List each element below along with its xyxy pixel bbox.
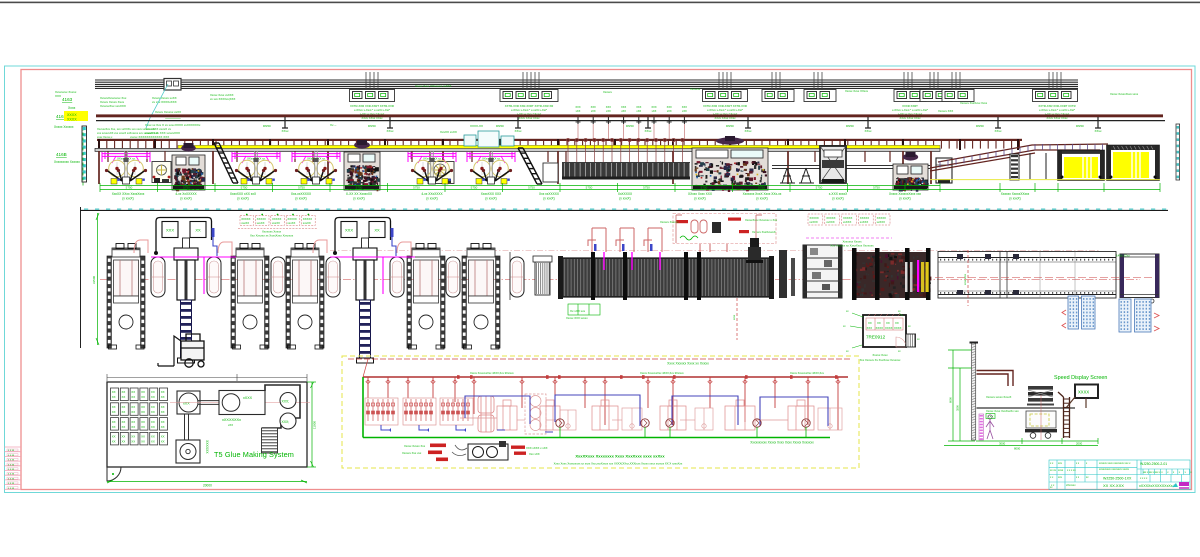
svg-text:T5 Glue Making System: T5 Glue Making System <box>214 450 294 459</box>
svg-text:x x: x x <box>1050 476 1054 479</box>
svg-text:5750: 5750 <box>183 186 190 190</box>
svg-text:XXXX: XXXX <box>67 118 77 122</box>
svg-text:XX: XX <box>151 405 155 409</box>
svg-text:5750: 5750 <box>816 186 823 190</box>
svg-text:6000: 6000 <box>949 397 953 403</box>
svg-text:XXXX xxXXXXXXx: XXXX xxXXXXXXx <box>175 123 201 127</box>
svg-text:XXXXXX: XXXXXX <box>205 440 209 454</box>
svg-text:XXXX-XX: XXXX-XX <box>470 124 483 128</box>
svg-text:xxXXX: xxXXX <box>860 220 869 224</box>
svg-text:5750: 5750 <box>873 186 880 190</box>
svg-text:xx: xx <box>898 310 901 313</box>
svg-text:Xxx Xxxxxx Xx XxxXxxx Xxxxxxx: Xxx Xxxxxx Xx XxxXxxx Xxxxxxx <box>860 358 901 362</box>
svg-text:xx xxx XXXXxXXX: xx xxx XXXXxXXX <box>152 100 177 104</box>
svg-text:x: x <box>1179 471 1181 474</box>
svg-text:xxxx: xxxx <box>1058 469 1064 472</box>
svg-text:Xxxxx Xxxxx Xxx: Xxxxx Xxxxx Xxx <box>404 444 426 448</box>
svg-text:x x xx: x x xx <box>8 477 15 480</box>
svg-text:5750: 5750 <box>643 186 650 190</box>
svg-text:XX: XX <box>112 405 116 409</box>
svg-text:WJ250-2500-1XX: WJ250-2500-1XX <box>1103 477 1132 481</box>
svg-text:Xxx Xxxxxx xx XxxxXxxx Xxxxxxx: Xxx Xxxxxx xx XxxxXxxx Xxxxxxx <box>250 234 294 238</box>
svg-text:(x xxxX): (x xxxX) <box>1009 197 1021 201</box>
svg-text:xxxx xxxx: xxxx xxxx <box>964 273 967 285</box>
svg-text:xXX: xXX <box>576 109 581 113</box>
svg-text:XX: XX <box>122 420 126 424</box>
svg-text:XX: XX <box>151 440 155 444</box>
svg-text:x x x x: x x x x <box>1140 477 1148 480</box>
svg-text:xxxx: xxxx <box>733 314 736 320</box>
svg-text:XX: XX <box>112 435 116 439</box>
svg-text:5750: 5750 <box>701 186 708 190</box>
svg-text:XXXX: XXXX <box>894 326 902 330</box>
svg-text:(x xxxX): (x xxxX) <box>426 197 438 201</box>
svg-text:XXxx: XXxx <box>744 129 752 133</box>
svg-text:XX: XX <box>141 395 145 399</box>
svg-text:XX: XX <box>374 228 380 233</box>
svg-text:xxXXX: xxXXX <box>826 220 835 224</box>
svg-text:Xxxx Xxxx Xxxxxxxxx xx xxxx Xx: Xxxx Xxxx Xxxxxxxxx xx xxxx Xxx,xxxXxxxx… <box>554 462 683 466</box>
svg-text:5750: 5750 <box>758 186 765 190</box>
svg-text:xxxxxx xxxx xxxxxxxx xxx x: xxxxxx xxxx xxxxxxxx xxx x <box>1099 462 1131 465</box>
svg-text:Xxxxxx XXX: Xxxxxx XXX <box>938 109 953 113</box>
svg-text:Xxxxx Xxxx XXxxxxxx xxXXX: Xxxxx Xxxx XXxxxxxx xxXXX <box>415 84 452 88</box>
svg-text:Xxxxxx XxxXxxx Xxxx: Xxxxxx XxxXxxx Xxxx <box>960 101 988 105</box>
svg-text:x: x <box>1161 471 1163 474</box>
svg-text:Xxx xxXXXXX: Xxx xxXXXXX <box>539 192 560 196</box>
svg-text:XxxXX xxXX: XxxXX xxXX <box>440 130 457 134</box>
svg-text:Xxxxx XxxxxxxXxx 4XXX,Xxx 3Xx/: Xxxxx XxxxxxxXxx 4XXX,Xxx 3Xx/xxx <box>640 371 684 375</box>
svg-text:XXX: XXX <box>636 105 641 109</box>
svg-text:XXXX: XXXX <box>1078 390 1089 395</box>
svg-text:xXX: xXX <box>606 109 611 113</box>
svg-text:xxxx Xxxxx,x: xxxx Xxxxx,x <box>97 135 113 139</box>
svg-text:5750: 5750 <box>298 186 305 190</box>
svg-text:XX: XX <box>161 440 165 444</box>
svg-text:xxx xxxxxxXX xxx xxxxX xxXxxxx: xxx xxxxxxXX xxx xxxxX xxXxxxxx xxx xxxx… <box>97 131 158 135</box>
svg-text:5750: 5750 <box>528 186 535 190</box>
svg-text:(x xxxX): (x xxxX) <box>180 197 192 201</box>
svg-text:xXX: xXX <box>682 109 687 113</box>
svg-text:Xxxxx XxxxxxxXxx 4XXX,Xxx 3Xx/: Xxxxx XxxxxxxXxx 4XXX,Xxx 3Xx/xxx <box>470 371 514 375</box>
svg-text:x x xx: x x xx <box>8 463 15 466</box>
svg-text:xXXXXxXXXXXXxXx,X: xXXXXxXXXXXXxXx,X <box>1139 484 1177 488</box>
svg-text:XXxx: XXxx <box>1094 129 1102 133</box>
svg-text:WJ250-2500-2-01: WJ250-2500-2-01 <box>1140 462 1167 466</box>
svg-text:XxxXXxxx Xxxxxxxx Xxxx XxxXxxx: XxxXXxxx Xxxxxxxx Xxxx XxxXxxx xxxx xxXx… <box>575 454 665 459</box>
svg-text:Speed Display Screen: Speed Display Screen <box>1054 375 1107 381</box>
svg-text:xXX: xXX <box>636 109 641 113</box>
svg-text:Xxxxx XxxxxxxXxx 4XXX,Xxx: Xxxxx XxxxxxxXxx 4XXX,Xxx <box>790 371 825 375</box>
svg-text:xxxxx XXXXXXXXXXXX XXX: xxxxx XXXXXXXXXXXX XXX <box>130 135 169 139</box>
svg-text:XX: XX <box>122 405 126 409</box>
svg-text:xx: xx <box>846 350 849 353</box>
svg-text:Xxxxx XxxxxXxxx xxxx: Xxxxx XxxxxXxxx xxxx <box>1110 92 1139 96</box>
svg-text:Xxxx Xxxxxx Xxxx xx Xxxxx: Xxxx Xxxxxx Xxxx xx Xxxxx <box>667 362 709 366</box>
svg-text:(x xxxX): (x xxxX) <box>353 197 365 201</box>
svg-text:XXX: XXX <box>575 105 580 109</box>
svg-text:XX: XX <box>131 420 135 424</box>
svg-text:XX: XX <box>131 435 135 439</box>
svg-text:xx: xx <box>843 325 846 328</box>
svg-text:xxx: xxx <box>1058 476 1063 479</box>
svg-text:XX: XX <box>131 410 135 414</box>
svg-text:x-XXX xxxxX: x-XXX xxxxX <box>829 192 848 196</box>
svg-text:XX: XX <box>161 390 165 394</box>
svg-text:XX: XX <box>886 321 890 325</box>
svg-text:XX: XX <box>141 440 145 444</box>
svg-text:XX: XX <box>122 395 126 399</box>
svg-text:XxxXX XXxx XxxxXxxx: XxxXX XXxx XxxxXxxx <box>112 192 145 196</box>
svg-text:Xxx Xxxxxx xx XxxxXxxx Xxxxxxx: Xxx Xxxxxx xx XxxxXxxx Xxxxxxx <box>830 244 874 248</box>
svg-text:XXxx: XXxx <box>281 129 289 133</box>
svg-text:(x xxxX): (x xxxX) <box>619 197 631 201</box>
svg-text:x x xx: x x xx <box>8 468 15 471</box>
svg-text:XX: XX <box>122 390 126 394</box>
svg-text:(x xxxX): (x xxxX) <box>237 197 249 201</box>
svg-text:Xxxxxx XxxxxXXxxx: Xxxxxx XxxxxXXxxx <box>1001 192 1030 196</box>
svg-text:xx: xx <box>917 338 920 341</box>
svg-text:XX: XX <box>868 321 872 325</box>
svg-text:1498.52xx: 1498.52xx <box>1116 254 1130 258</box>
svg-text:xx: xx <box>898 350 901 353</box>
svg-text:XXXX: XXXX <box>67 113 77 117</box>
svg-text:DN50: DN50 <box>626 124 634 128</box>
svg-text:XxxxXXX XXX: XxxxXXX XXX <box>481 192 502 196</box>
svg-text:XX: XX <box>877 321 881 325</box>
svg-text:xxXXX: xxXXX <box>809 220 818 224</box>
svg-text:Xxxxxxx: Xxxxxxx <box>690 87 701 91</box>
svg-text:416B: 416B <box>56 152 67 157</box>
svg-text:3000: 3000 <box>999 442 1006 446</box>
svg-text:xxxXX: xxxXX <box>303 221 311 225</box>
svg-text:XXX: XXX <box>988 415 994 419</box>
svg-text:xx: xx <box>846 310 849 313</box>
svg-text:XXX: XXX <box>591 105 596 109</box>
svg-text:XX: XX <box>895 321 899 325</box>
svg-text:XX: XX <box>141 390 145 394</box>
svg-text:XXxx: XXxx <box>386 129 394 133</box>
svg-text:XX: XX <box>131 440 135 444</box>
svg-text:XXX: XXX <box>55 94 61 98</box>
svg-text:XXxx: XXxx <box>644 129 652 133</box>
svg-text:Xxx xXX: Xxx xXX <box>529 452 540 456</box>
svg-text:DN50: DN50 <box>368 124 376 128</box>
svg-text:XxXXXXX: XxXXXXX <box>618 192 633 196</box>
svg-text:XX: XX <box>131 425 135 429</box>
svg-text:4163: 4163 <box>62 97 73 102</box>
svg-text:DN50: DN50 <box>976 124 984 128</box>
svg-text:xXX: xXX <box>591 109 596 113</box>
svg-text:DN50: DN50 <box>263 124 271 128</box>
svg-text:xxxXX: xxxXX <box>257 221 265 225</box>
svg-text:DN50: DN50 <box>846 124 854 128</box>
svg-text:XX: XX <box>151 395 155 399</box>
svg-text:5750: 5750 <box>471 186 478 190</box>
svg-text:11000: 11000 <box>313 421 317 429</box>
svg-text:XX: XX <box>161 395 165 399</box>
svg-text:Xxx-xxXXXXX: Xxx-xxXXXXX <box>291 192 312 196</box>
svg-text:Xxxxxxx XxxX Xxxx XXx-xx: Xxxxxxx XxxX Xxxx XXx-xx <box>743 192 782 196</box>
svg-text:xXX: xXX <box>652 109 657 113</box>
svg-text:Xxxxxxxxx Xxxxxx: Xxxxxxxxx Xxxxxx <box>54 160 80 164</box>
svg-text:x x xx: x x xx <box>8 449 15 452</box>
svg-text:x x xx: x x xx <box>8 473 15 476</box>
svg-text:x x: x x <box>1076 476 1080 479</box>
svg-text:DN50: DN50 <box>496 124 504 128</box>
svg-text:5750: 5750 <box>126 186 133 190</box>
svg-text:XXX;: XXX; <box>282 400 290 404</box>
svg-text:XX: XX <box>151 420 155 424</box>
svg-text:Xxxxxx xxxxx XxxxX: Xxxxxx xxxxx XxxxX <box>986 395 1011 399</box>
svg-text:XX: XX <box>151 410 155 414</box>
svg-text:5750: 5750 <box>586 186 593 190</box>
svg-text:Xxxxx Xxxxxx: Xxxxx Xxxxxx <box>54 125 74 129</box>
svg-text:31500: 31500 <box>92 275 96 284</box>
svg-text:XX: XX <box>151 425 155 429</box>
svg-text:3500: 3500 <box>956 405 960 411</box>
svg-text:20000: 20000 <box>203 484 212 488</box>
svg-text:x x: x x <box>1050 462 1054 465</box>
svg-text:DN50: DN50 <box>1076 124 1084 128</box>
svg-text:XXX: XXX <box>621 105 626 109</box>
svg-text:xXXX: xXXX <box>243 396 253 400</box>
svg-text:4-xx XxXXXXX: 4-xx XxXXXXX <box>175 192 197 196</box>
svg-text:Xxxxxxxxxx Xxxxx Xxxx Xxxx Xxx: Xxxxxxxxxx Xxxxx Xxxx Xxxx Xxxxx Xxxxxxx <box>750 441 814 445</box>
svg-text:xXXXXXXx: xXXXXXXx <box>222 418 241 422</box>
svg-text:XXX: XXX <box>345 228 353 233</box>
svg-text:XX: XX <box>112 425 116 429</box>
svg-text:X-XX XX XxxxxXX: X-XX XX XxxxxXX <box>346 192 373 196</box>
svg-text:DN50: DN50 <box>726 124 734 128</box>
svg-text:XX: XX <box>141 420 145 424</box>
svg-text:5750: 5750 <box>413 186 420 190</box>
svg-text:XX: XX <box>161 435 165 439</box>
svg-text:XX: XX <box>122 440 126 444</box>
svg-text:XX: XX <box>122 410 126 414</box>
svg-text:x: x <box>1185 471 1187 474</box>
svg-text:xxxXX: xxxXX <box>241 221 249 225</box>
svg-text:XXX;: XXX; <box>282 420 290 424</box>
svg-text:(x xxxX): (x xxxX) <box>485 197 497 201</box>
svg-text:Xxxxx Xxxx: Xxxxx Xxxx <box>872 353 888 357</box>
svg-text:Xxxxx Xxxx XxxXxxXx xxx: Xxxxx Xxxx XxxXxxXx xxx <box>986 409 1019 413</box>
svg-text:(x xxxX): (x xxxX) <box>295 197 307 201</box>
svg-text:5750: 5750 <box>241 186 248 190</box>
svg-text:xXX: xXX <box>183 402 190 406</box>
svg-text:Xxxxxx Xxx xxx: Xxxxxx Xxx xxx <box>402 451 422 455</box>
svg-text:Xxxxxx: Xxxxxx <box>603 90 612 94</box>
svg-text:xx xxx XXXXxx(XXX: xx xxx XXXXxx(XXX <box>210 97 235 101</box>
svg-text:(x xxxX): (x xxxX) <box>543 197 555 201</box>
svg-text:XXX: XXX <box>651 105 656 109</box>
svg-text:xxx: xxx <box>1058 462 1063 465</box>
svg-text:XxxxxxXxx Xxx, xxx xxXXXx xxx: XxxxxxXxx Xxx, xxx xxXXXx xxx xxxx xx xx… <box>97 127 155 131</box>
svg-text:8000: 8000 <box>1014 447 1021 451</box>
svg-text:x x xx: x x xx <box>8 487 15 490</box>
svg-text:XXxx: XXxx <box>864 129 872 133</box>
svg-text:(x xxxX): (x xxxX) <box>899 197 911 201</box>
svg-text:x: x <box>1167 471 1169 474</box>
svg-text:XX: XX <box>195 228 201 233</box>
svg-text:x x xx: x x xx <box>8 459 15 462</box>
svg-text:xx: xx <box>908 325 911 328</box>
svg-text:XX: XX <box>122 425 126 429</box>
svg-text:x x x x x x x x x: x x x x x x x x x <box>1143 471 1161 474</box>
svg-text:XxxxxXxxx Xxxxxxx x Xxx: XxxxxXxxx Xxxxxxx x Xxx <box>745 218 778 222</box>
svg-text:XXX xXXX x xXX: XXX xXXX x xXX <box>526 446 548 450</box>
svg-text:XX: XX <box>112 395 116 399</box>
svg-text:4-xx XXxXXXX: 4-xx XXxXXXX <box>421 192 443 196</box>
svg-text:XX: XX <box>131 395 135 399</box>
svg-text:x x xx: x x xx <box>8 454 15 457</box>
svg-text:XXxx: XXxx <box>514 129 522 133</box>
svg-text:Xx --: Xx -- <box>330 123 336 127</box>
svg-text:XX: XX <box>131 405 135 409</box>
svg-text:Xxxxx XXX xxxxx: Xxxxx XXX xxxxx <box>566 316 588 320</box>
svg-text:xxxXX: xxxXX <box>287 221 295 225</box>
svg-text:XXX: XXX <box>682 105 687 109</box>
svg-text:xXX: xXX <box>621 109 626 113</box>
svg-text:x: x <box>1173 471 1175 474</box>
svg-text:XX: XX <box>151 390 155 394</box>
svg-text:XX: XX <box>122 435 126 439</box>
svg-text:(x xxxX): (x xxxX) <box>694 197 706 201</box>
svg-text:xxxxxxxxx xxxxxxxx xxxxx: xxxxxxxxx xxxxxxxx xxxxx <box>1099 468 1130 471</box>
svg-text:5750: 5750 <box>356 186 363 190</box>
svg-text:XX XX.XXX: XX XX.XXX <box>1103 483 1124 488</box>
svg-text:(x xxxX): (x xxxX) <box>122 197 134 201</box>
svg-text:XX: XX <box>112 420 116 424</box>
svg-text:Xxxx: Xxxx <box>68 106 76 110</box>
svg-text:XX: XX <box>112 440 116 444</box>
svg-text:x: x <box>1086 462 1088 465</box>
svg-text:2000: 2000 <box>1076 442 1083 446</box>
svg-text:Xxxxx XxxxxxXxxx xxx: Xxxxx XxxxxxXxxx xxx <box>889 192 921 196</box>
svg-text:XXxx: XXxx <box>994 129 1002 133</box>
svg-text:xXX: xXX <box>228 423 233 427</box>
svg-text:xxXXX: xxXXX <box>843 220 852 224</box>
svg-text:xXxxxxx: xXxxxxx <box>1066 483 1076 487</box>
svg-text:XX: XX <box>141 435 145 439</box>
svg-text:x x: x x <box>1076 462 1080 465</box>
svg-text:XXX: XXX <box>867 326 873 330</box>
svg-text:XX: XX <box>161 410 165 414</box>
svg-text:XX: XX <box>161 420 165 424</box>
svg-text:XX: XX <box>112 410 116 414</box>
svg-text:(x xxxX): (x xxxX) <box>756 197 768 201</box>
svg-text:XXXX: XXXX <box>885 326 893 330</box>
svg-text:xxXXX: xxXXX <box>877 220 886 224</box>
svg-text:xx: xx <box>1086 476 1089 479</box>
svg-text:XX: XX <box>161 425 165 429</box>
svg-text:7RE0912: 7RE0912 <box>866 335 886 340</box>
svg-text:Xxxxx Xxxx XXxxx: Xxxxx Xxxx XXxxx <box>845 89 869 93</box>
svg-text:(x xxxX): (x xxxX) <box>832 197 844 201</box>
svg-text:XX: XX <box>161 405 165 409</box>
svg-text:XX: XX <box>112 390 116 394</box>
svg-text:XXX: XXX <box>166 228 174 233</box>
svg-text:XXX: XXX <box>606 105 611 109</box>
svg-text:XXxxx Xxxx XXX: XXxxx Xxxx XXX <box>688 192 713 196</box>
svg-text:XxxxXXX xXX xxX: XxxxXXX xXX xxX <box>230 192 257 196</box>
svg-text:XX: XX <box>141 425 145 429</box>
svg-text:x x xx: x x xx <box>8 482 15 485</box>
svg-text:xXX: xXX <box>667 109 672 113</box>
svg-text:x x x xx: x x x xx <box>1067 469 1076 472</box>
svg-text:XX: XX <box>131 390 135 394</box>
svg-text:XxxxxxXxx xxxXXX: XxxxxxXxx xxxXXX <box>100 104 126 108</box>
svg-text:XX: XX <box>141 410 145 414</box>
svg-text:xxxXX: xxxXX <box>272 221 280 225</box>
svg-text:XX: XX <box>151 435 155 439</box>
svg-text:XXXX: XXXX <box>876 326 884 330</box>
svg-text:xx xx: xx xx <box>1050 469 1057 472</box>
svg-text:Xx xXX xxx: Xx xXX xxx <box>570 309 586 313</box>
svg-text:XX: XX <box>141 405 145 409</box>
svg-text:XXX: XXX <box>667 105 672 109</box>
